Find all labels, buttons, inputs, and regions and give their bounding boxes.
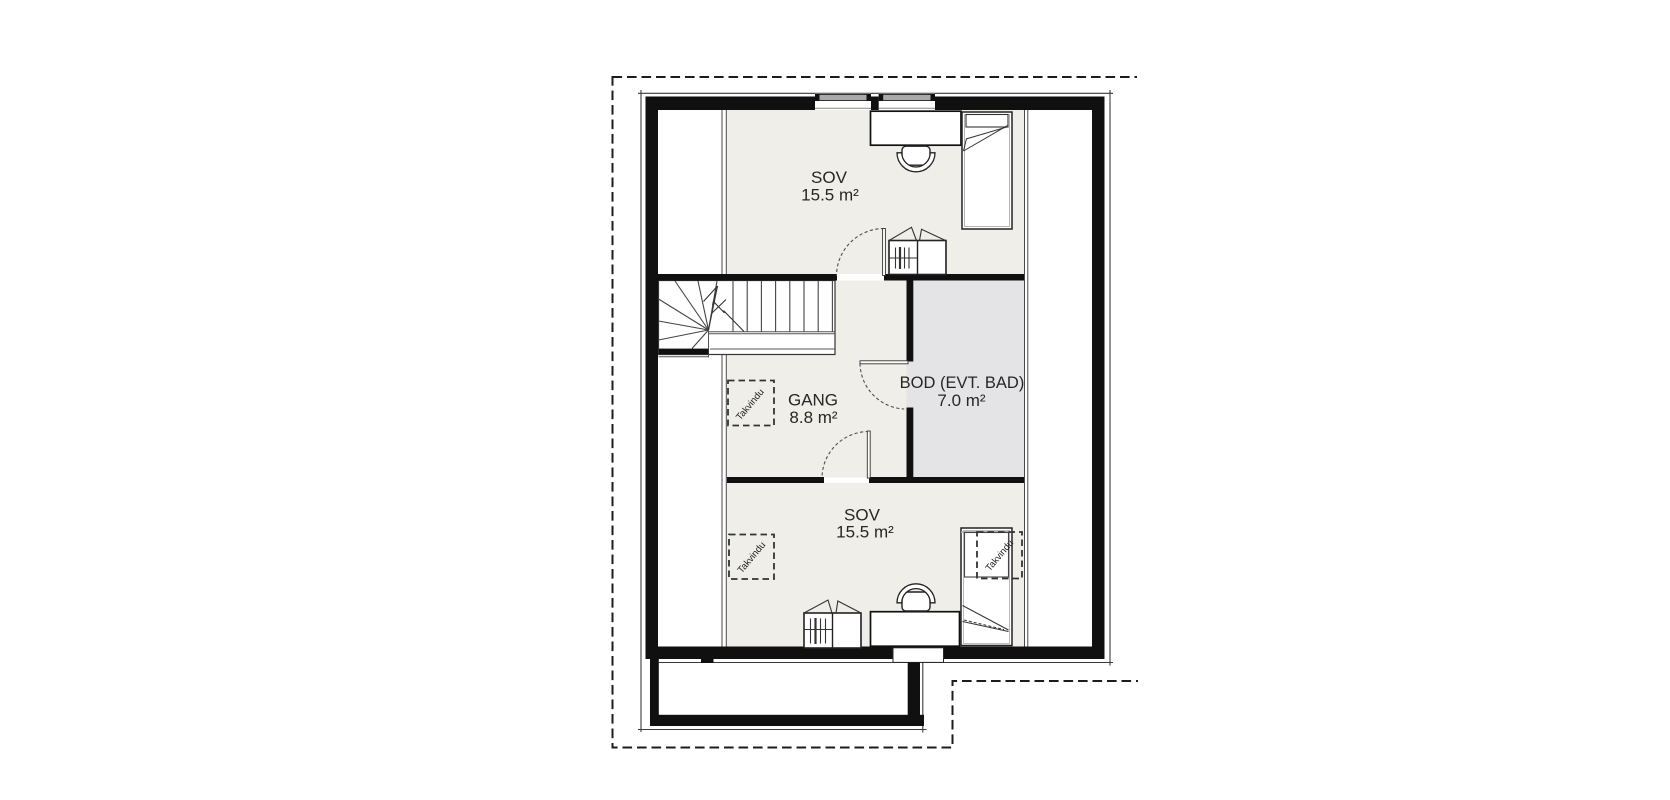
svg-text:15.5 m²: 15.5 m² bbox=[801, 186, 859, 205]
svg-text:GANG: GANG bbox=[788, 391, 838, 410]
svg-text:7.0 m²: 7.0 m² bbox=[937, 391, 986, 410]
svg-text:SOV: SOV bbox=[811, 168, 848, 187]
svg-text:BOD (EVT. BAD): BOD (EVT. BAD) bbox=[900, 374, 1025, 392]
svg-text:8.8 m²: 8.8 m² bbox=[789, 408, 838, 427]
svg-text:15.5 m²: 15.5 m² bbox=[836, 523, 894, 542]
